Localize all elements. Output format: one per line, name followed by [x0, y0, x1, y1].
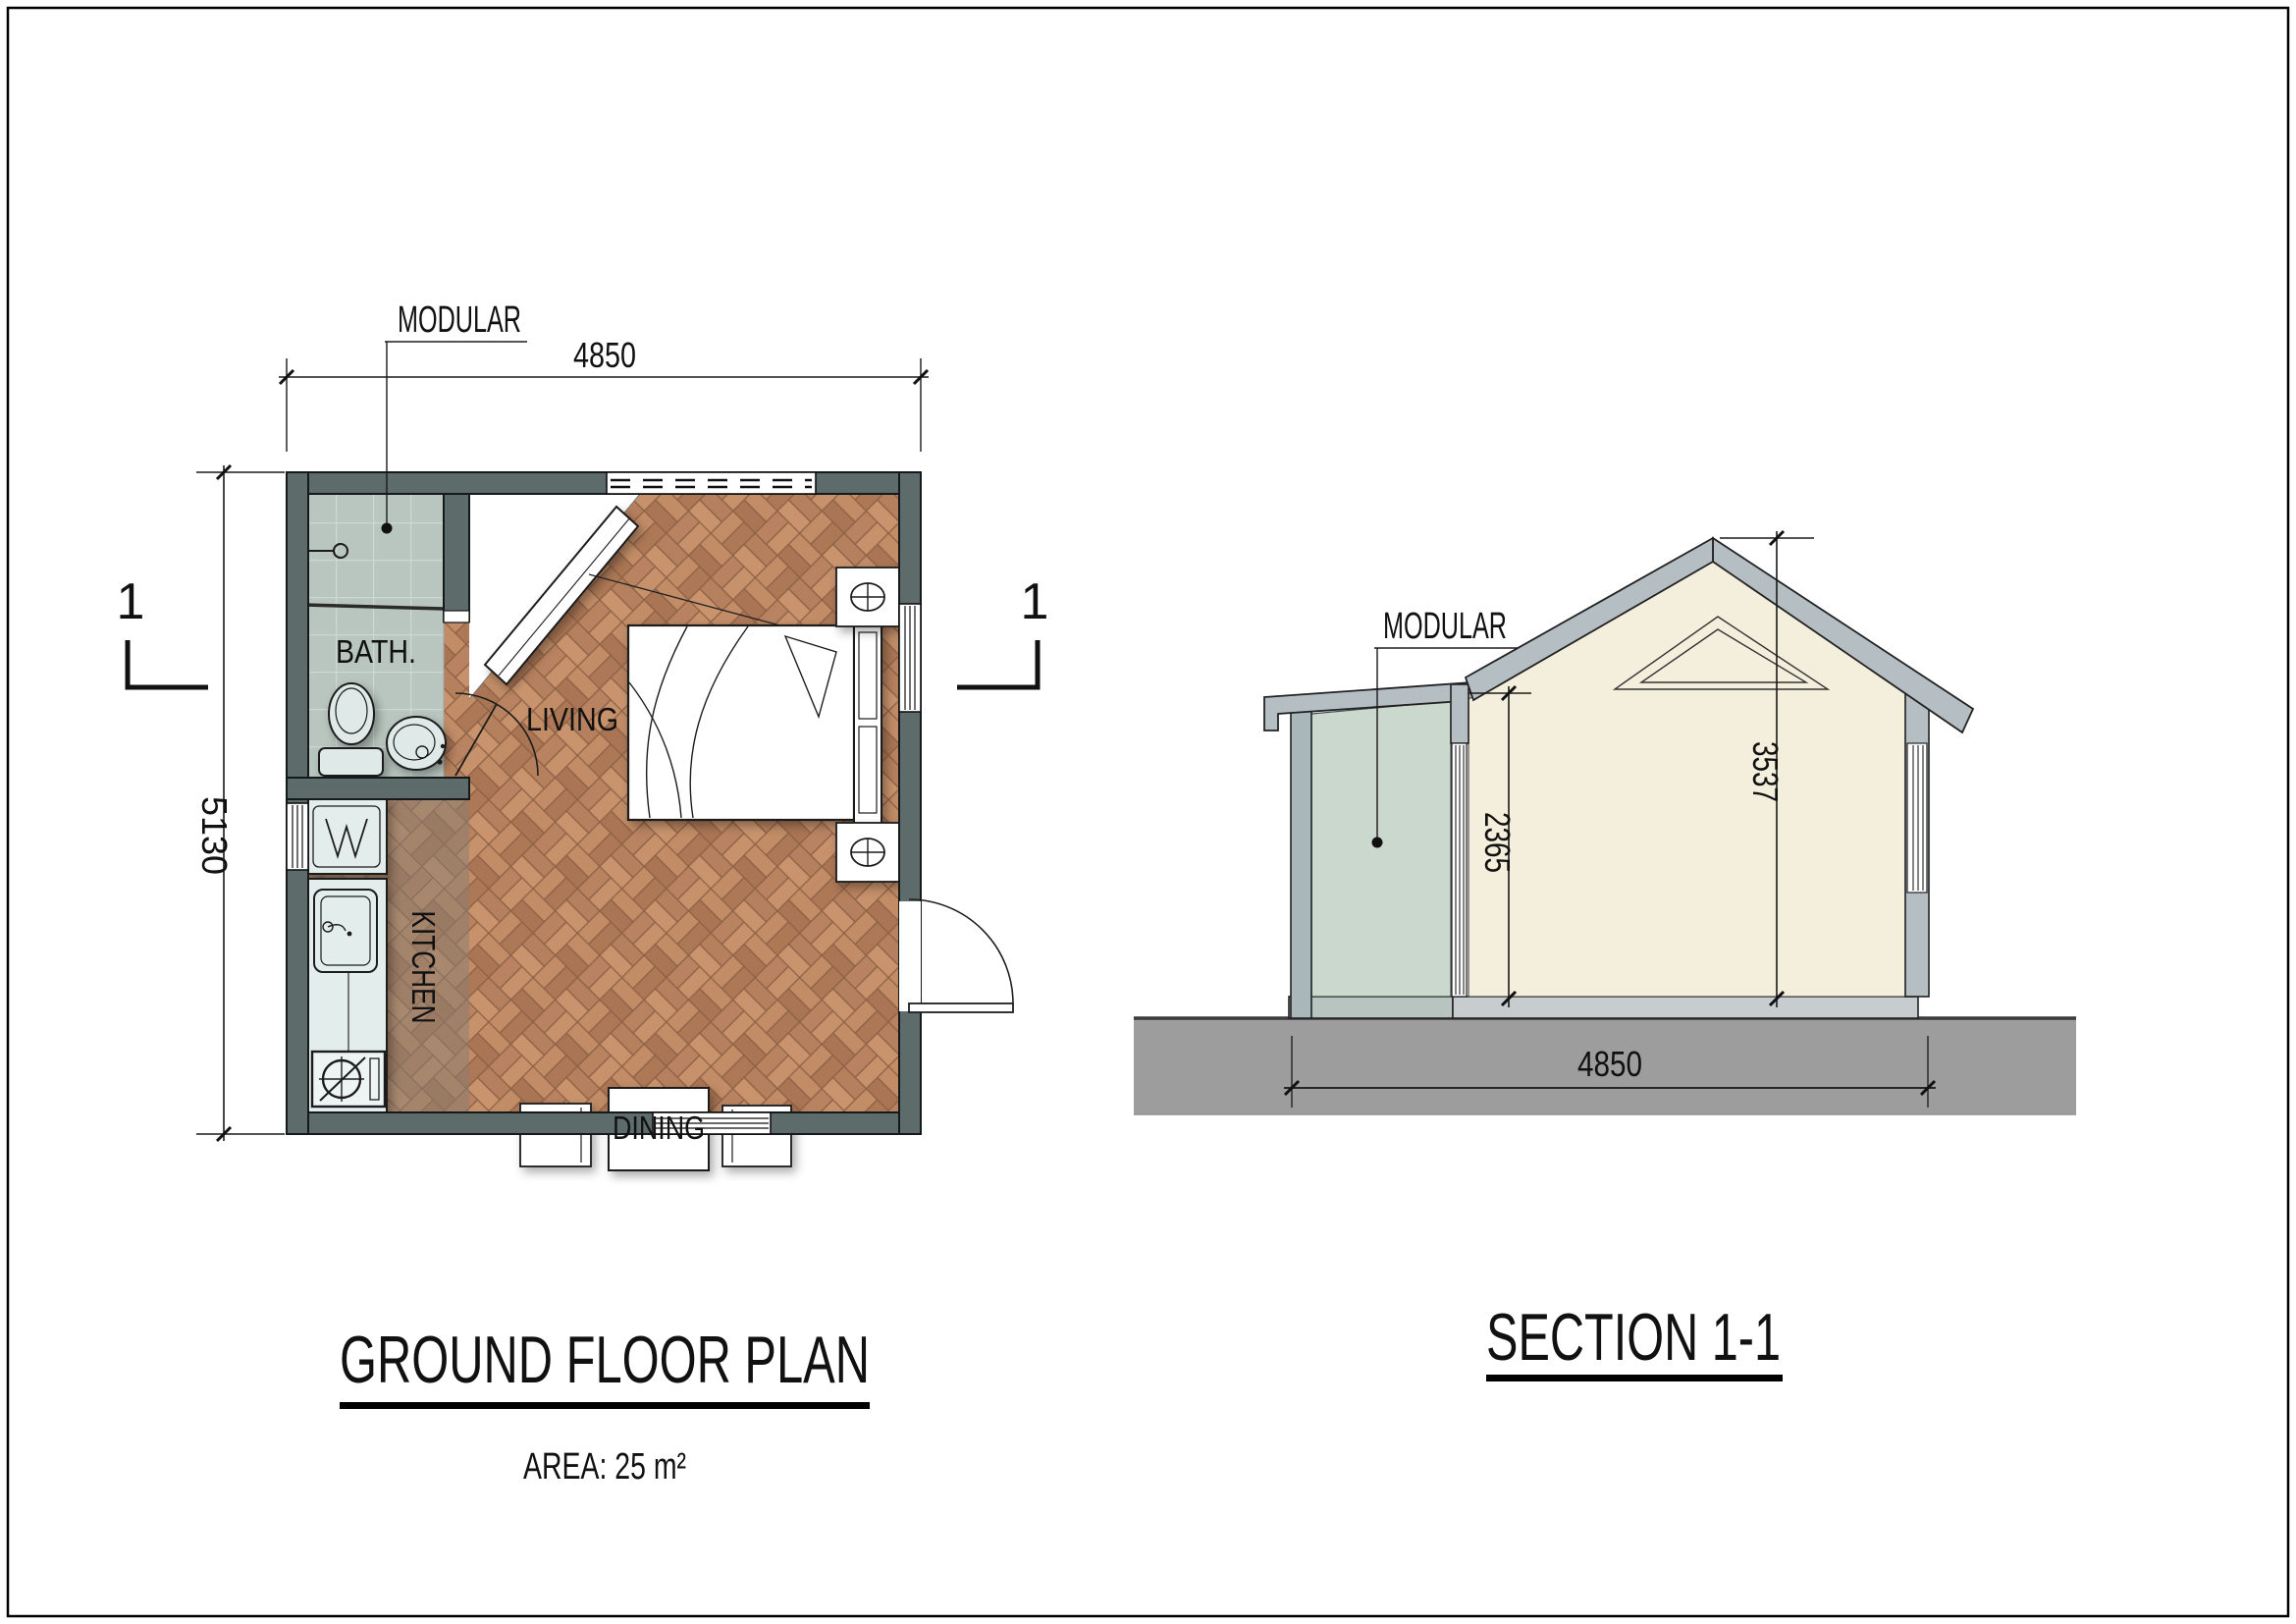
plan-modular-label: MODULAR — [398, 299, 521, 341]
plan-dim-width: 4850 — [279, 335, 929, 452]
bed — [628, 621, 881, 825]
section-cut-icon — [957, 640, 1038, 687]
door-leaf — [909, 1003, 1013, 1012]
window-right — [899, 604, 921, 712]
nightstand-top — [836, 568, 899, 626]
plan-title: GROUND FLOOR PLAN — [340, 1323, 870, 1397]
dining-label: DINING — [613, 1110, 705, 1146]
title-underline — [340, 1402, 870, 1409]
wall-top — [287, 472, 921, 494]
entrance-door — [899, 899, 1013, 1012]
door-swing-arc — [909, 899, 1013, 1003]
bath-wall-bottom — [287, 778, 469, 799]
section-modular-label: MODULAR — [1383, 606, 1507, 647]
section-width-value: 4850 — [1577, 1044, 1642, 1084]
wall-right — [899, 472, 921, 1134]
plan-area-label: AREA: 25 m² — [523, 1446, 686, 1488]
ridge-height-value: 3537 — [1745, 741, 1786, 802]
lamp-icon — [851, 583, 884, 611]
section-title: SECTION 1-1 — [1486, 1300, 1781, 1375]
headboard — [854, 621, 881, 825]
module-interior — [1311, 701, 1451, 997]
plan-title-block: GROUND FLOOR PLAN AREA: 25 m² — [340, 1323, 870, 1488]
door-jamb — [444, 611, 469, 623]
washbasin-icon — [387, 717, 446, 770]
section-marker-left: 1 — [117, 573, 208, 687]
section-marker-number: 1 — [1021, 573, 1049, 630]
section-view: MODULAR 2365 3537 4850 — [1134, 531, 2076, 1381]
window-left — [287, 803, 308, 870]
title-underline — [1486, 1375, 1783, 1381]
main-floor-slab — [1453, 997, 1918, 1018]
leader-dot — [382, 523, 393, 534]
section-cut-icon — [128, 640, 208, 687]
door-opening — [899, 901, 921, 1011]
front-wall-top — [1451, 684, 1468, 743]
floor-plan: BATH. LIVING DINING KITCHEN MODULAR 4850… — [117, 299, 1049, 1488]
bath-label: BATH. — [336, 633, 416, 670]
plan-width-value: 4850 — [573, 335, 636, 375]
front-wall-glazing — [1452, 743, 1467, 997]
module-left-wall — [1291, 704, 1311, 1018]
cooktop-icon — [312, 1052, 385, 1107]
lamp-icon — [851, 839, 884, 866]
module-floor-slab — [1289, 997, 1453, 1018]
living-label: LIVING — [526, 701, 618, 737]
section-marker-right: 1 — [957, 573, 1048, 687]
plan-dim-height: 5130 — [194, 465, 285, 1141]
kitchen-counter — [306, 879, 387, 1112]
drawing-sheet: BATH. LIVING DINING KITCHEN MODULAR 4850… — [0, 0, 2296, 1624]
section-title-block: SECTION 1-1 — [1486, 1300, 1783, 1381]
leader-dot — [1372, 838, 1383, 848]
module-height-value: 2365 — [1477, 812, 1518, 873]
kitchen-label: KITCHEN — [405, 911, 442, 1024]
plan-height-value: 5130 — [194, 796, 235, 875]
right-wall-window — [1907, 743, 1927, 893]
wall-bottom — [287, 1112, 921, 1134]
nightstand-bottom — [836, 823, 899, 882]
drawing-canvas: BATH. LIVING DINING KITCHEN MODULAR 4850… — [0, 0, 2296, 1624]
bath-wall-vertical — [444, 494, 469, 622]
washer-icon — [306, 799, 387, 874]
section-marker-number: 1 — [117, 573, 145, 630]
window-top — [607, 472, 816, 494]
